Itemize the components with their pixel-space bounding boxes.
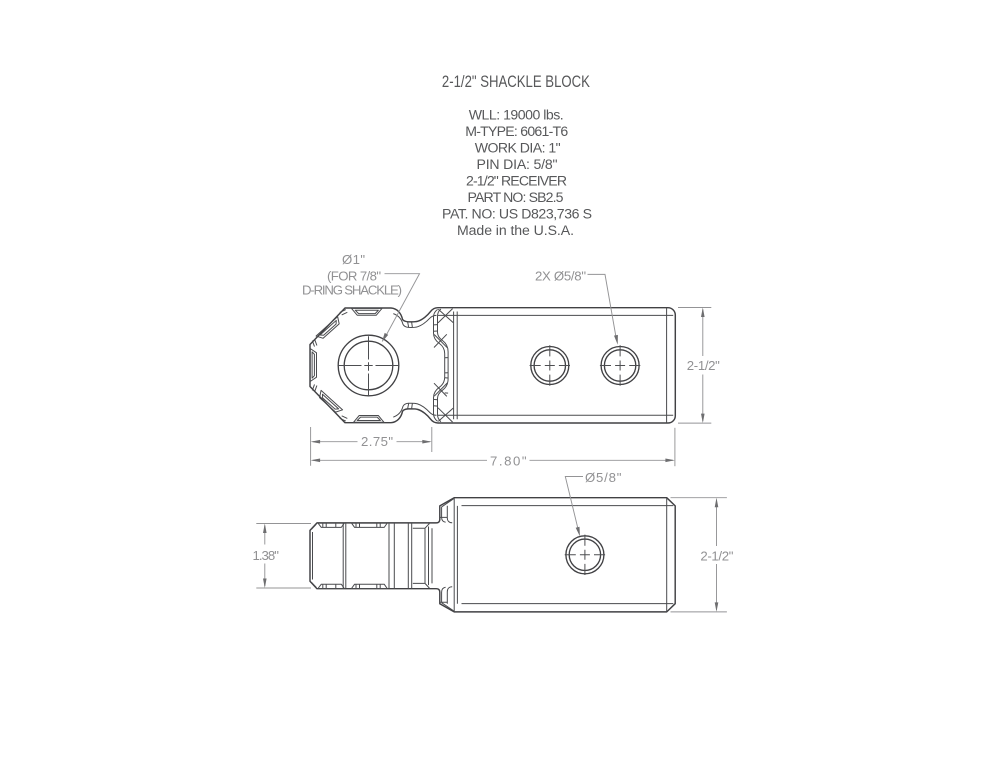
svg-text:PAT. NO: US D823,736 S: PAT. NO: US D823,736 S — [442, 205, 592, 221]
svg-text:2-1/2" SHACKLE BLOCK: 2-1/2" SHACKLE BLOCK — [442, 73, 590, 91]
svg-text:2X Ø5/8": 2X Ø5/8" — [535, 269, 586, 284]
svg-text:PIN DIA: 5/8": PIN DIA: 5/8" — [477, 156, 558, 172]
svg-text:2-1/2": 2-1/2" — [700, 549, 733, 564]
svg-text:Ø5/8": Ø5/8" — [585, 470, 622, 485]
svg-text:7.80": 7.80" — [490, 453, 527, 468]
svg-text:Ø1": Ø1" — [342, 252, 365, 267]
svg-text:D-RING SHACKLE): D-RING SHACKLE) — [302, 282, 402, 297]
svg-text:2-1/2": 2-1/2" — [687, 358, 720, 373]
svg-text:2-1/2" RECEIVER: 2-1/2" RECEIVER — [466, 172, 567, 188]
svg-text:WLL: 19000 lbs.: WLL: 19000 lbs. — [469, 106, 564, 122]
svg-text:M-TYPE: 6061-T6: M-TYPE: 6061-T6 — [465, 123, 568, 139]
svg-text:(FOR 7/8": (FOR 7/8" — [327, 268, 381, 283]
svg-text:1.38": 1.38" — [253, 548, 280, 563]
svg-text:PART NO: SB2.5: PART NO: SB2.5 — [468, 189, 564, 205]
svg-text:WORK DIA: 1": WORK DIA: 1" — [475, 139, 561, 155]
svg-text:2.75": 2.75" — [361, 434, 393, 449]
svg-text:Made in the U.S.A.: Made in the U.S.A. — [457, 222, 574, 238]
